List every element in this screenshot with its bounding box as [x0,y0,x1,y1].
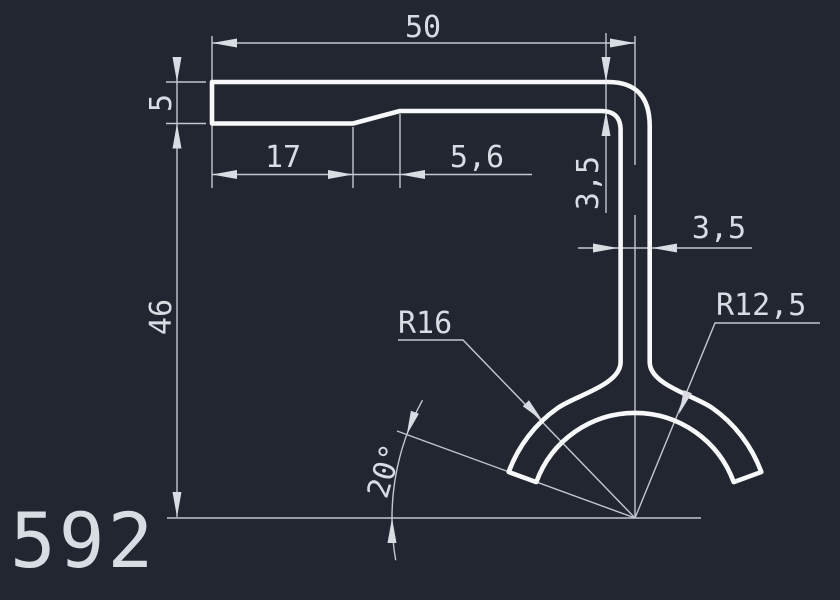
dim-inner-radius-label: R12,5 [716,288,806,323]
dim-overall-height-label: 46 [144,299,179,335]
dim-outer-radius-label: R16 [398,306,452,341]
dim-flat-length-label: 17 [265,140,301,175]
dim-stem-thickness-label: 3,5 [692,211,746,246]
dim-overall-width-label: 50 [405,10,441,45]
cad-canvas: 50 5 17 5,6 3,5 3,5 46 R16 R12,5 20° 592 [0,0,840,600]
part-number: 592 [10,496,156,585]
dim-taper-length-label: 5,6 [450,140,504,175]
dim-flange-thickness-label: 5 [144,94,179,112]
dim-end-thickness-label: 3,5 [571,156,606,210]
